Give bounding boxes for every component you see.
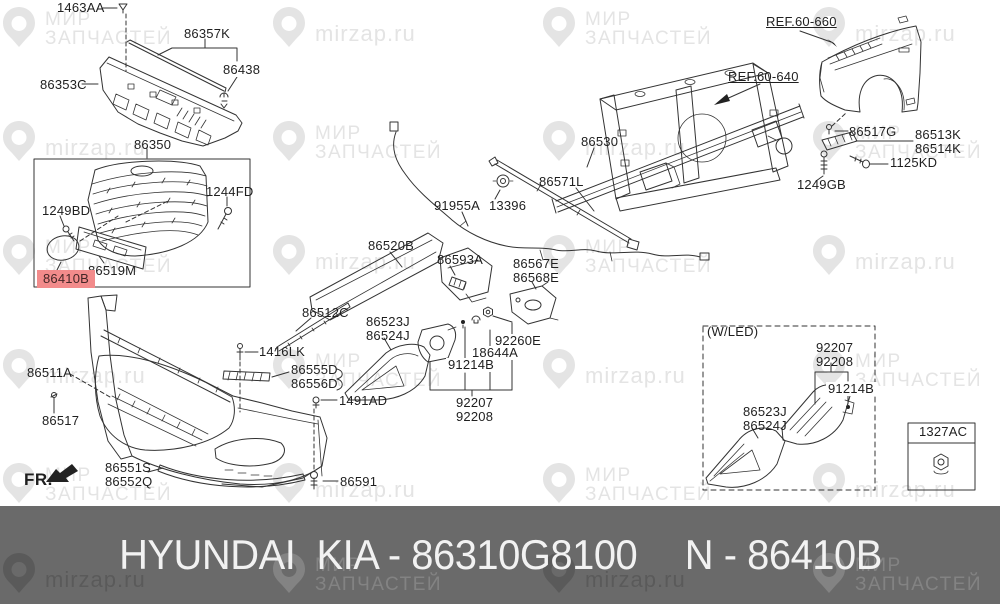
part-label-13396: 13396: [489, 199, 526, 213]
part-label-line: 86410B: [43, 272, 89, 286]
part-label-line: 91955A: [434, 199, 480, 213]
part-label-86513K-86514K: 86513K86514K: [915, 128, 961, 156]
part-label-91955A: 91955A: [434, 199, 480, 213]
part-label-86512C: 86512C: [302, 306, 349, 320]
part-label-line: 92207: [816, 341, 853, 355]
part-label-86523J-86524J: 86523J86524J: [366, 315, 410, 343]
part-label-line: 86568E: [513, 271, 559, 285]
part-label-line: 86514K: [915, 142, 961, 156]
part-label-86410B: 86410B: [37, 270, 95, 288]
banner-caption: HYUNDAI KIA - 86310G8100N - 86410B: [119, 531, 882, 579]
part-label-86530: 86530: [581, 135, 618, 149]
part-label-REF.60-640: REF.60-640: [728, 70, 799, 84]
banner-caption-left: HYUNDAI KIA - 86310G8100: [119, 531, 637, 578]
part-label-line: 18644A: [472, 346, 518, 360]
part-label-1125KD: 1125KD: [890, 156, 937, 170]
part-label-line: 86551S: [105, 461, 152, 475]
part-label-line: 86519M: [88, 264, 136, 278]
part-label-line: 86438: [223, 63, 260, 77]
part-label-line: 1249BD: [42, 204, 90, 218]
part-label-1491AD: 1491AD: [339, 394, 387, 408]
part-label-line: 86520B: [368, 239, 414, 253]
part-label-line: 86555D: [291, 363, 338, 377]
part-label-line: 86350: [134, 138, 171, 152]
part-label-line: REF.60-660: [766, 15, 837, 29]
part-label-line: 91214B: [448, 358, 494, 372]
part-label-86567E-86568E: 86567E86568E: [513, 257, 559, 285]
part-label-line: 1463AA: [57, 1, 104, 15]
part-label-line: 1244FD: [206, 185, 253, 199]
part-label-86438: 86438: [221, 63, 262, 77]
part-label-86517G: 86517G: [849, 125, 896, 139]
part-label-line: 86591: [340, 475, 377, 489]
part-label-REF.60-660: REF.60-660: [766, 15, 837, 29]
part-label-86357K: 86357K: [184, 27, 230, 41]
part-label-line: 92208: [816, 355, 853, 369]
part-label-92207-92208: 9220792208: [456, 396, 493, 424]
part-label-86593A: 86593A: [437, 253, 483, 267]
banner-caption-right: N - 86410B: [684, 531, 881, 578]
part-label-1244FD: 1244FD: [206, 185, 253, 199]
part-label-1416LK: 1416LK: [259, 345, 305, 359]
part-label-91214B: 91214B: [446, 358, 496, 372]
part-label-line: 91214B: [828, 382, 874, 396]
part-label-WLED: (W/LED): [707, 325, 758, 339]
part-label-86555D-86556D: 86555D86556D: [291, 363, 338, 391]
part-label-1249BD: 1249BD: [42, 204, 90, 218]
part-label-line: 86353C: [40, 78, 87, 92]
part-label-1327AC: 1327AC: [919, 425, 967, 439]
part-label-line: 92260E: [495, 334, 541, 348]
location-pin-icon: [2, 552, 36, 594]
part-label-line: 1416LK: [259, 345, 305, 359]
part-label-line: 13396: [489, 199, 526, 213]
part-label-FR: FR.: [24, 473, 53, 487]
part-label-line: 86512C: [302, 306, 349, 320]
part-label-line: 1327AC: [919, 425, 967, 439]
part-labels-layer: 1463AA86357K8643886353C863501244FD1249BD…: [0, 0, 1000, 506]
part-label-line: 86524J: [366, 329, 410, 343]
part-label-1249GB: 1249GB: [797, 178, 846, 192]
part-label-86353C: 86353C: [40, 78, 87, 92]
part-label-line: 86556D: [291, 377, 338, 391]
part-label-line: 86567E: [513, 257, 559, 271]
part-label-86511A: 86511A: [27, 366, 72, 380]
part-label-92207-92208-led: 9220792208: [816, 341, 853, 369]
part-label-line: 1491AD: [339, 394, 387, 408]
part-label-line: 86513K: [915, 128, 961, 142]
parts-diagram-page: МИРЗАПЧАСТЕЙmirzap.ruМИРЗАПЧАСТЕЙmirzap.…: [0, 0, 1000, 604]
part-label-line: 86593A: [437, 253, 483, 267]
part-label-91214B-led: 91214B: [826, 382, 876, 396]
part-label-line: (W/LED): [707, 325, 758, 339]
part-label-86350: 86350: [134, 138, 171, 152]
part-label-line: 1249GB: [797, 178, 846, 192]
part-number-banner: HYUNDAI KIA - 86310G8100N - 86410B mirza…: [0, 506, 1000, 604]
part-label-86571L: 86571L: [539, 175, 584, 189]
part-label-line: 1125KD: [890, 156, 937, 170]
part-label-line: FR.: [24, 473, 53, 487]
part-label-line: 86523J: [743, 405, 787, 419]
part-label-line: 92208: [456, 410, 493, 424]
part-label-line: REF.60-640: [728, 70, 799, 84]
part-label-line: 86511A: [27, 366, 72, 380]
part-label-line: 86523J: [366, 315, 410, 329]
part-label-86517: 86517: [42, 414, 79, 428]
part-label-92260E: 92260E: [493, 334, 543, 348]
part-label-line: 86530: [581, 135, 618, 149]
part-label-line: 86517G: [849, 125, 896, 139]
part-label-line: 86517: [42, 414, 79, 428]
part-label-line: 92207: [456, 396, 493, 410]
part-label-86551S-86552Q: 86551S86552Q: [105, 461, 152, 489]
part-label-line: 86552Q: [105, 475, 152, 489]
part-label-line: 86571L: [539, 175, 584, 189]
part-label-86591: 86591: [340, 475, 377, 489]
part-label-86520B: 86520B: [368, 239, 414, 253]
part-label-18644A: 18644A: [470, 346, 520, 360]
part-label-line: 86357K: [184, 27, 230, 41]
part-label-line: 86524J: [743, 419, 787, 433]
part-label-1463AA: 1463AA: [57, 1, 104, 15]
part-label-86523J-86524J-led: 86523J86524J: [743, 405, 787, 433]
part-label-86519M: 86519M: [88, 264, 136, 278]
